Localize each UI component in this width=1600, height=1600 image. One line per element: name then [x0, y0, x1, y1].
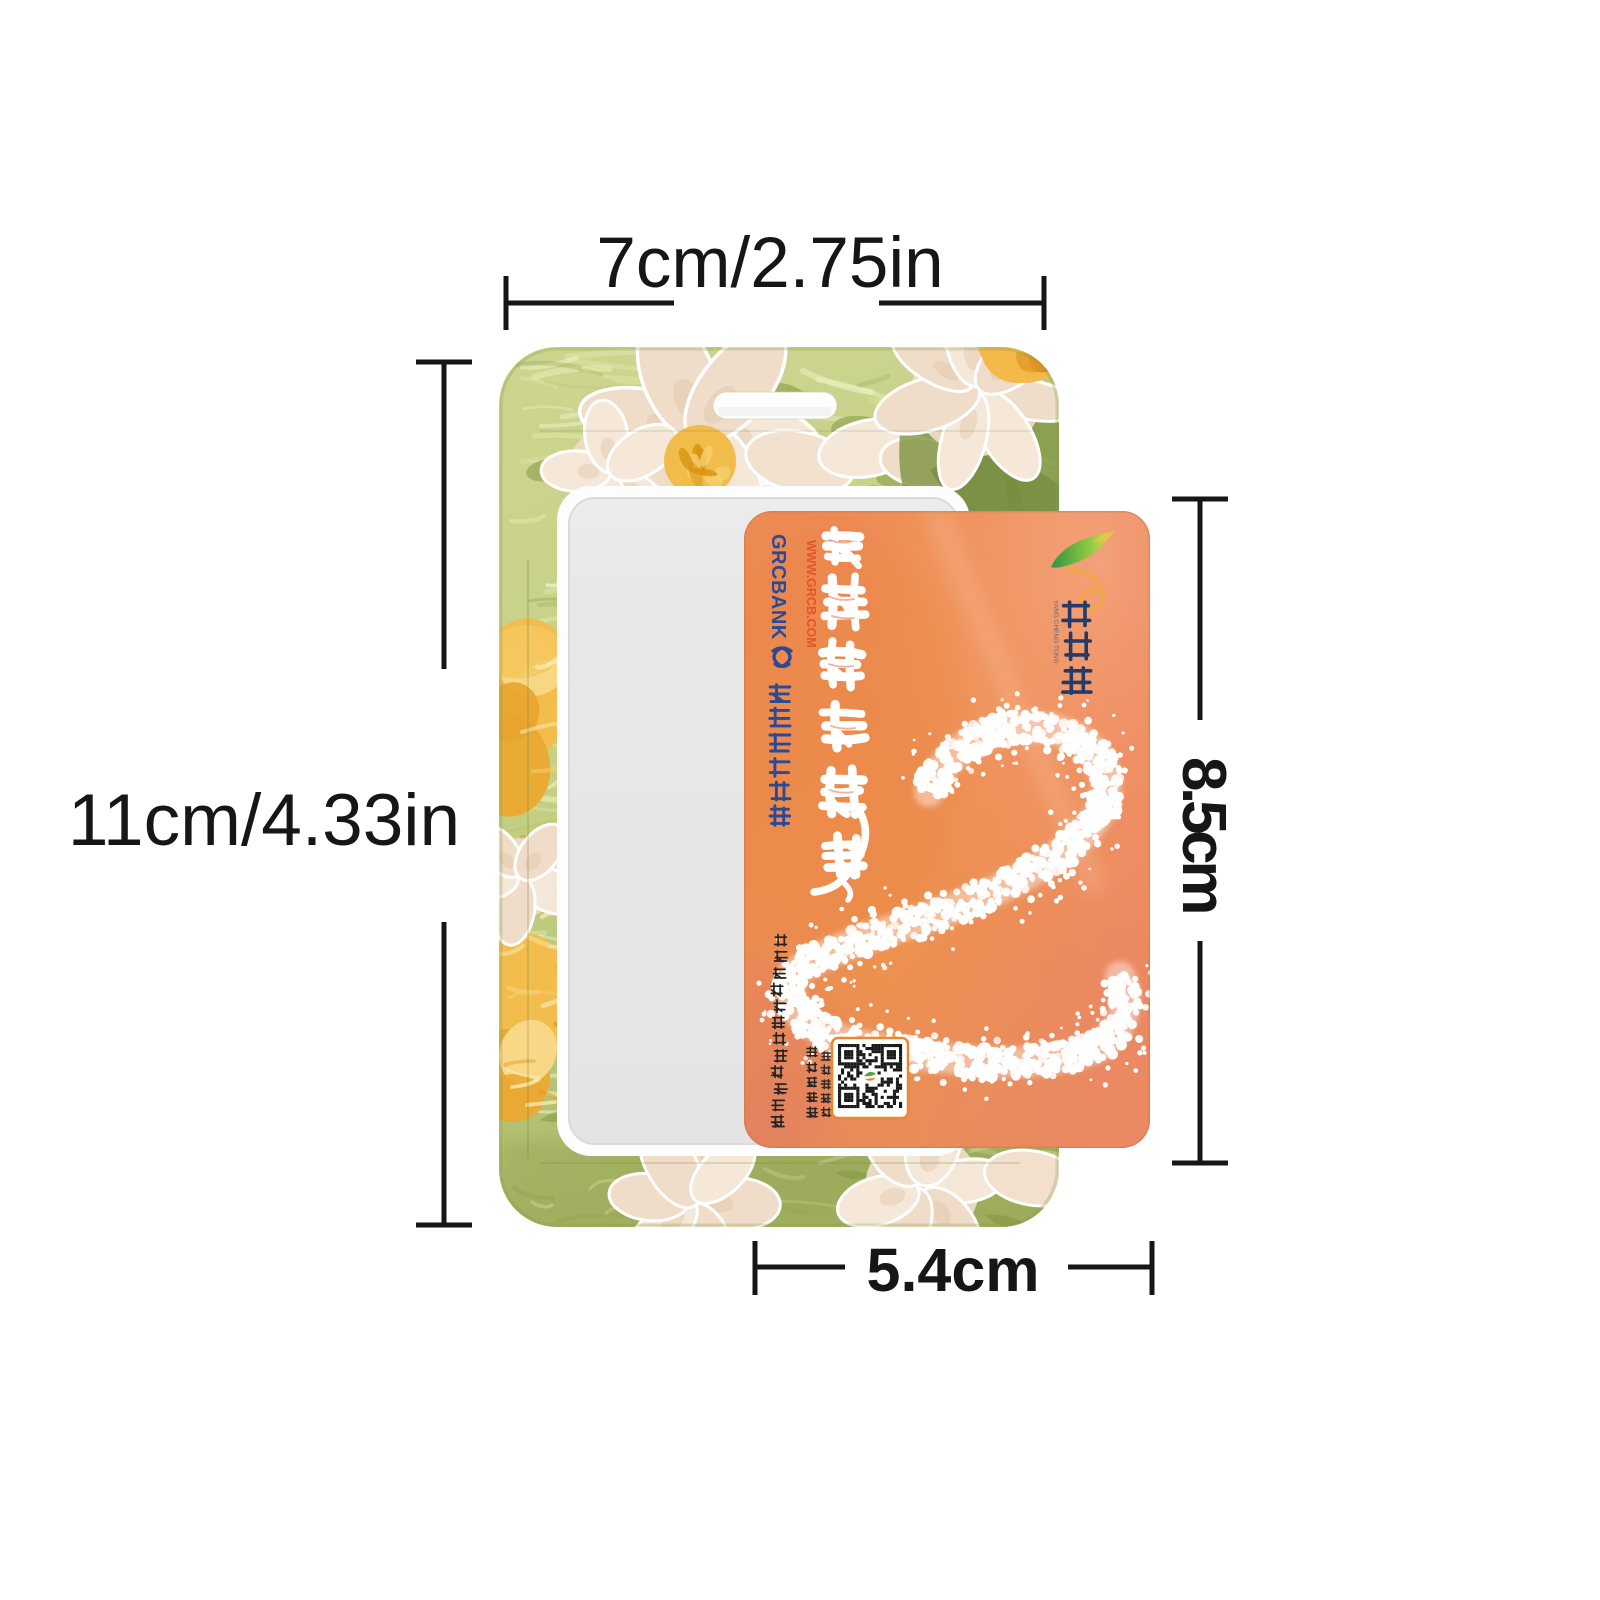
svg-text:WWW.GRCB.COM: WWW.GRCB.COM — [804, 540, 818, 648]
svg-text:8.5cm: 8.5cm — [1169, 757, 1238, 912]
svg-text:YANG CHENG TONG: YANG CHENG TONG — [1052, 600, 1059, 664]
svg-text:5.4cm: 5.4cm — [867, 1236, 1040, 1304]
svg-text:7cm/2.75in: 7cm/2.75in — [596, 224, 943, 303]
svg-text:11cm/4.33in: 11cm/4.33in — [68, 780, 460, 861]
svg-text:GRCBANK: GRCBANK — [767, 534, 789, 640]
